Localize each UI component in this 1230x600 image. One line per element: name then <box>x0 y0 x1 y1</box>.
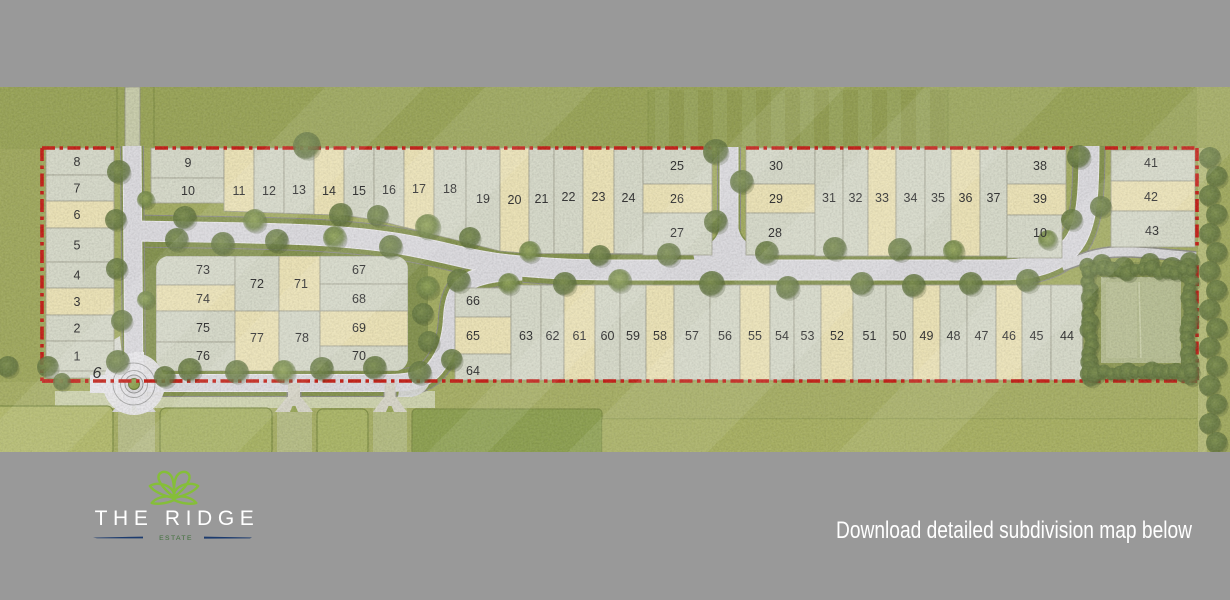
svg-text:THE RIDGE: THE RIDGE <box>95 507 260 530</box>
svg-text:Download detailed subdivision: Download detailed subdivision map below <box>836 517 1193 544</box>
svg-text:ESTATE: ESTATE <box>159 535 193 542</box>
